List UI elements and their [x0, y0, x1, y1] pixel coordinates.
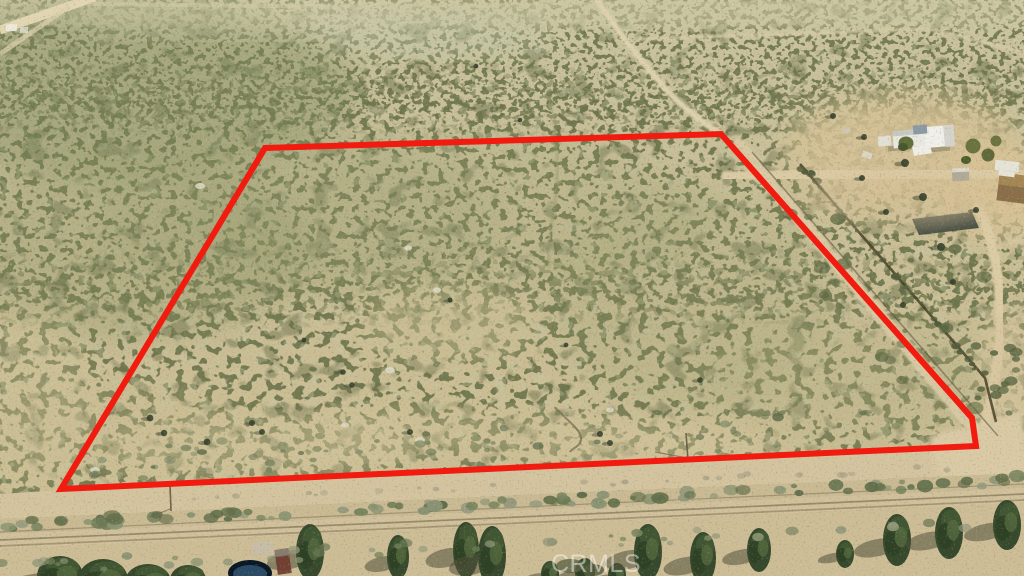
svg-text:CRMLS: CRMLS — [551, 550, 641, 576]
